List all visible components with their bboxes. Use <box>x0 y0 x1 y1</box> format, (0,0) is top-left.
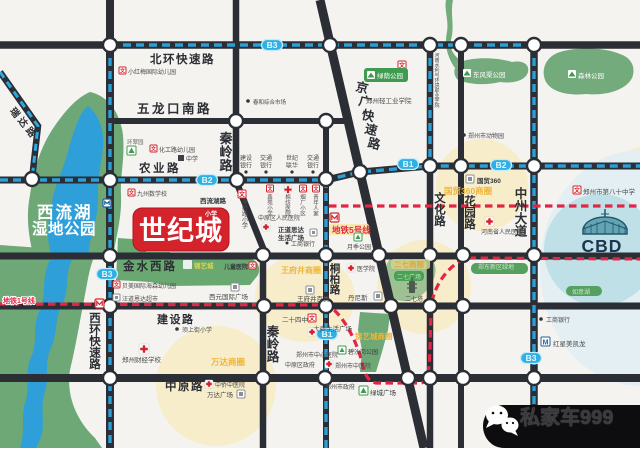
svg-text:文: 文 <box>573 186 581 194</box>
svg-text:农业路: 农业路 <box>138 161 181 175</box>
svg-text:王府井百货: 王府井百货 <box>297 294 330 303</box>
svg-text:交通银行: 交通银行 <box>260 154 272 170</box>
svg-text:秦岭路: 秦岭路 <box>266 324 280 364</box>
svg-text:须上街小学: 须上街小学 <box>182 326 212 334</box>
svg-text:交通银行: 交通银行 <box>307 154 319 170</box>
svg-text:中原路: 中原路 <box>165 379 204 393</box>
svg-text:金水西路: 金水西路 <box>122 259 177 273</box>
svg-text:如意湖: 如意湖 <box>572 288 590 296</box>
svg-text:西流湖: 西流湖 <box>37 202 93 222</box>
svg-text:中原区人民医院: 中原区人民医院 <box>258 214 300 222</box>
svg-text:东风渠公园: 东风渠公园 <box>473 70 506 79</box>
svg-text:烟厂小区: 烟厂小区 <box>300 193 306 218</box>
svg-text:万达广场: 万达广场 <box>207 390 234 399</box>
svg-text:棉纺医院: 棉纺医院 <box>285 193 291 218</box>
svg-text:国贸360商圈: 国贸360商圈 <box>444 186 492 196</box>
svg-text:秦岭路小学: 秦岭路小学 <box>242 198 248 230</box>
svg-text:郑州市中医院: 郑州市中医院 <box>335 362 371 370</box>
svg-text:郑东新区绿地: 郑东新区绿地 <box>478 263 514 271</box>
svg-text:河南水利与环境职业学院: 河南水利与环境职业学院 <box>434 52 439 109</box>
svg-text:文: 文 <box>238 191 246 199</box>
svg-text:文化路: 文化路 <box>434 191 446 228</box>
svg-text:国贸360: 国贸360 <box>477 176 501 185</box>
svg-text:桐柏路: 桐柏路 <box>330 262 341 296</box>
svg-text:工商银行: 工商银行 <box>291 240 315 248</box>
svg-text:M: M <box>543 340 549 347</box>
svg-text:地铁1号线: 地铁1号线 <box>3 296 35 305</box>
svg-text:郑州市第八十中学: 郑州市第八十中学 <box>583 187 636 196</box>
svg-text:中学: 中学 <box>186 155 198 163</box>
svg-text:贝美国际海森幼儿园: 贝美国际海森幼儿园 <box>122 282 176 290</box>
svg-text:汪道恩达超市: 汪道恩达超市 <box>122 295 158 303</box>
svg-text:湿地公园: 湿地公园 <box>31 219 96 238</box>
svg-text:大商生活广场: 大商生活广场 <box>313 324 353 333</box>
svg-text:二十四中: 二十四中 <box>282 315 308 324</box>
svg-text:儿童医院: 儿童医院 <box>223 263 248 271</box>
svg-text:私家车999: 私家车999 <box>520 405 613 429</box>
svg-text:B2: B2 <box>496 160 507 170</box>
svg-text:地铁5号线: 地铁5号线 <box>332 225 371 235</box>
svg-text:中侨中医院: 中侨中医院 <box>215 381 245 389</box>
svg-text:B1: B1 <box>403 159 414 169</box>
svg-text:丹尼斯: 丹尼斯 <box>348 293 368 302</box>
svg-text:郑州市中心医院: 郑州市中心医院 <box>296 351 338 359</box>
svg-text:绿荫公园: 绿荫公园 <box>377 71 403 80</box>
svg-text:西流湖路: 西流湖路 <box>200 196 227 205</box>
svg-text:小红梅国际幼儿园: 小红梅国际幼儿园 <box>128 68 176 76</box>
svg-text:生活广场: 生活广场 <box>278 233 305 242</box>
svg-text:环翠园: 环翠园 <box>127 139 144 146</box>
svg-text:建设银行: 建设银行 <box>240 154 252 170</box>
svg-text:鑫苑小学: 鑫苑小学 <box>267 193 273 218</box>
svg-text:郑州财经学校: 郑州财经学校 <box>122 355 162 364</box>
svg-text:建设路: 建设路 <box>157 312 195 326</box>
svg-text:工商银行: 工商银行 <box>546 316 570 324</box>
svg-text:B2: B2 <box>202 175 213 185</box>
svg-text:医学院: 医学院 <box>357 265 375 273</box>
svg-text:二七塔: 二七塔 <box>405 295 423 303</box>
svg-text:花园路: 花园路 <box>464 194 476 231</box>
svg-text:河南省人民医院: 河南省人民医院 <box>481 228 523 236</box>
svg-text:绿城广场: 绿城广场 <box>370 388 397 397</box>
svg-text:北环快速路: 北环快速路 <box>150 52 215 66</box>
svg-text:B3: B3 <box>526 353 537 363</box>
svg-text:郑州轻工业学院: 郑州轻工业学院 <box>366 96 412 105</box>
svg-text:春和综合市场: 春和综合市场 <box>253 98 287 106</box>
svg-text:九州数学校: 九州数学校 <box>137 190 167 198</box>
svg-text:月季公园: 月季公园 <box>347 243 371 251</box>
svg-text:正道思达: 正道思达 <box>278 225 305 234</box>
svg-text:青年人家: 青年人家 <box>313 193 319 218</box>
svg-text:西元国际广场: 西元国际广场 <box>209 292 249 301</box>
svg-text:郑州市动物园: 郑州市动物园 <box>468 132 504 140</box>
svg-text:红星美凯龙: 红星美凯龙 <box>553 339 586 348</box>
svg-text:西环快速路: 西环快速路 <box>88 312 101 371</box>
svg-text:碧沙岗公园: 碧沙岗公园 <box>348 348 378 356</box>
svg-text:森林公园: 森林公园 <box>578 71 604 80</box>
svg-text:锦艺城: 锦艺城 <box>194 261 214 270</box>
svg-text:世纪城: 世纪城 <box>139 215 223 246</box>
svg-text:中原区政府: 中原区政府 <box>285 361 315 369</box>
svg-text:锦艺城商圈: 锦艺城商圈 <box>355 331 393 341</box>
svg-text:B3: B3 <box>267 40 278 50</box>
svg-text:郑州市政府: 郑州市政府 <box>325 383 355 391</box>
svg-text:CBD: CBD <box>582 236 623 256</box>
svg-text:化工路幼儿园: 化工路幼儿园 <box>159 146 195 154</box>
svg-text:五龙口南路: 五龙口南路 <box>137 101 212 116</box>
svg-text:B3: B3 <box>102 269 113 279</box>
svg-text:二七广场: 二七广场 <box>397 273 421 281</box>
svg-text:秦岭路: 秦岭路 <box>218 131 233 173</box>
svg-text:世纪联华: 世纪联华 <box>286 154 298 170</box>
svg-text:万达商圈: 万达商圈 <box>210 357 245 367</box>
svg-text:王府井商圈: 王府井商圈 <box>281 265 321 275</box>
svg-text:二七商圈: 二七商圈 <box>394 259 424 269</box>
svg-text:文: 文 <box>308 314 316 322</box>
